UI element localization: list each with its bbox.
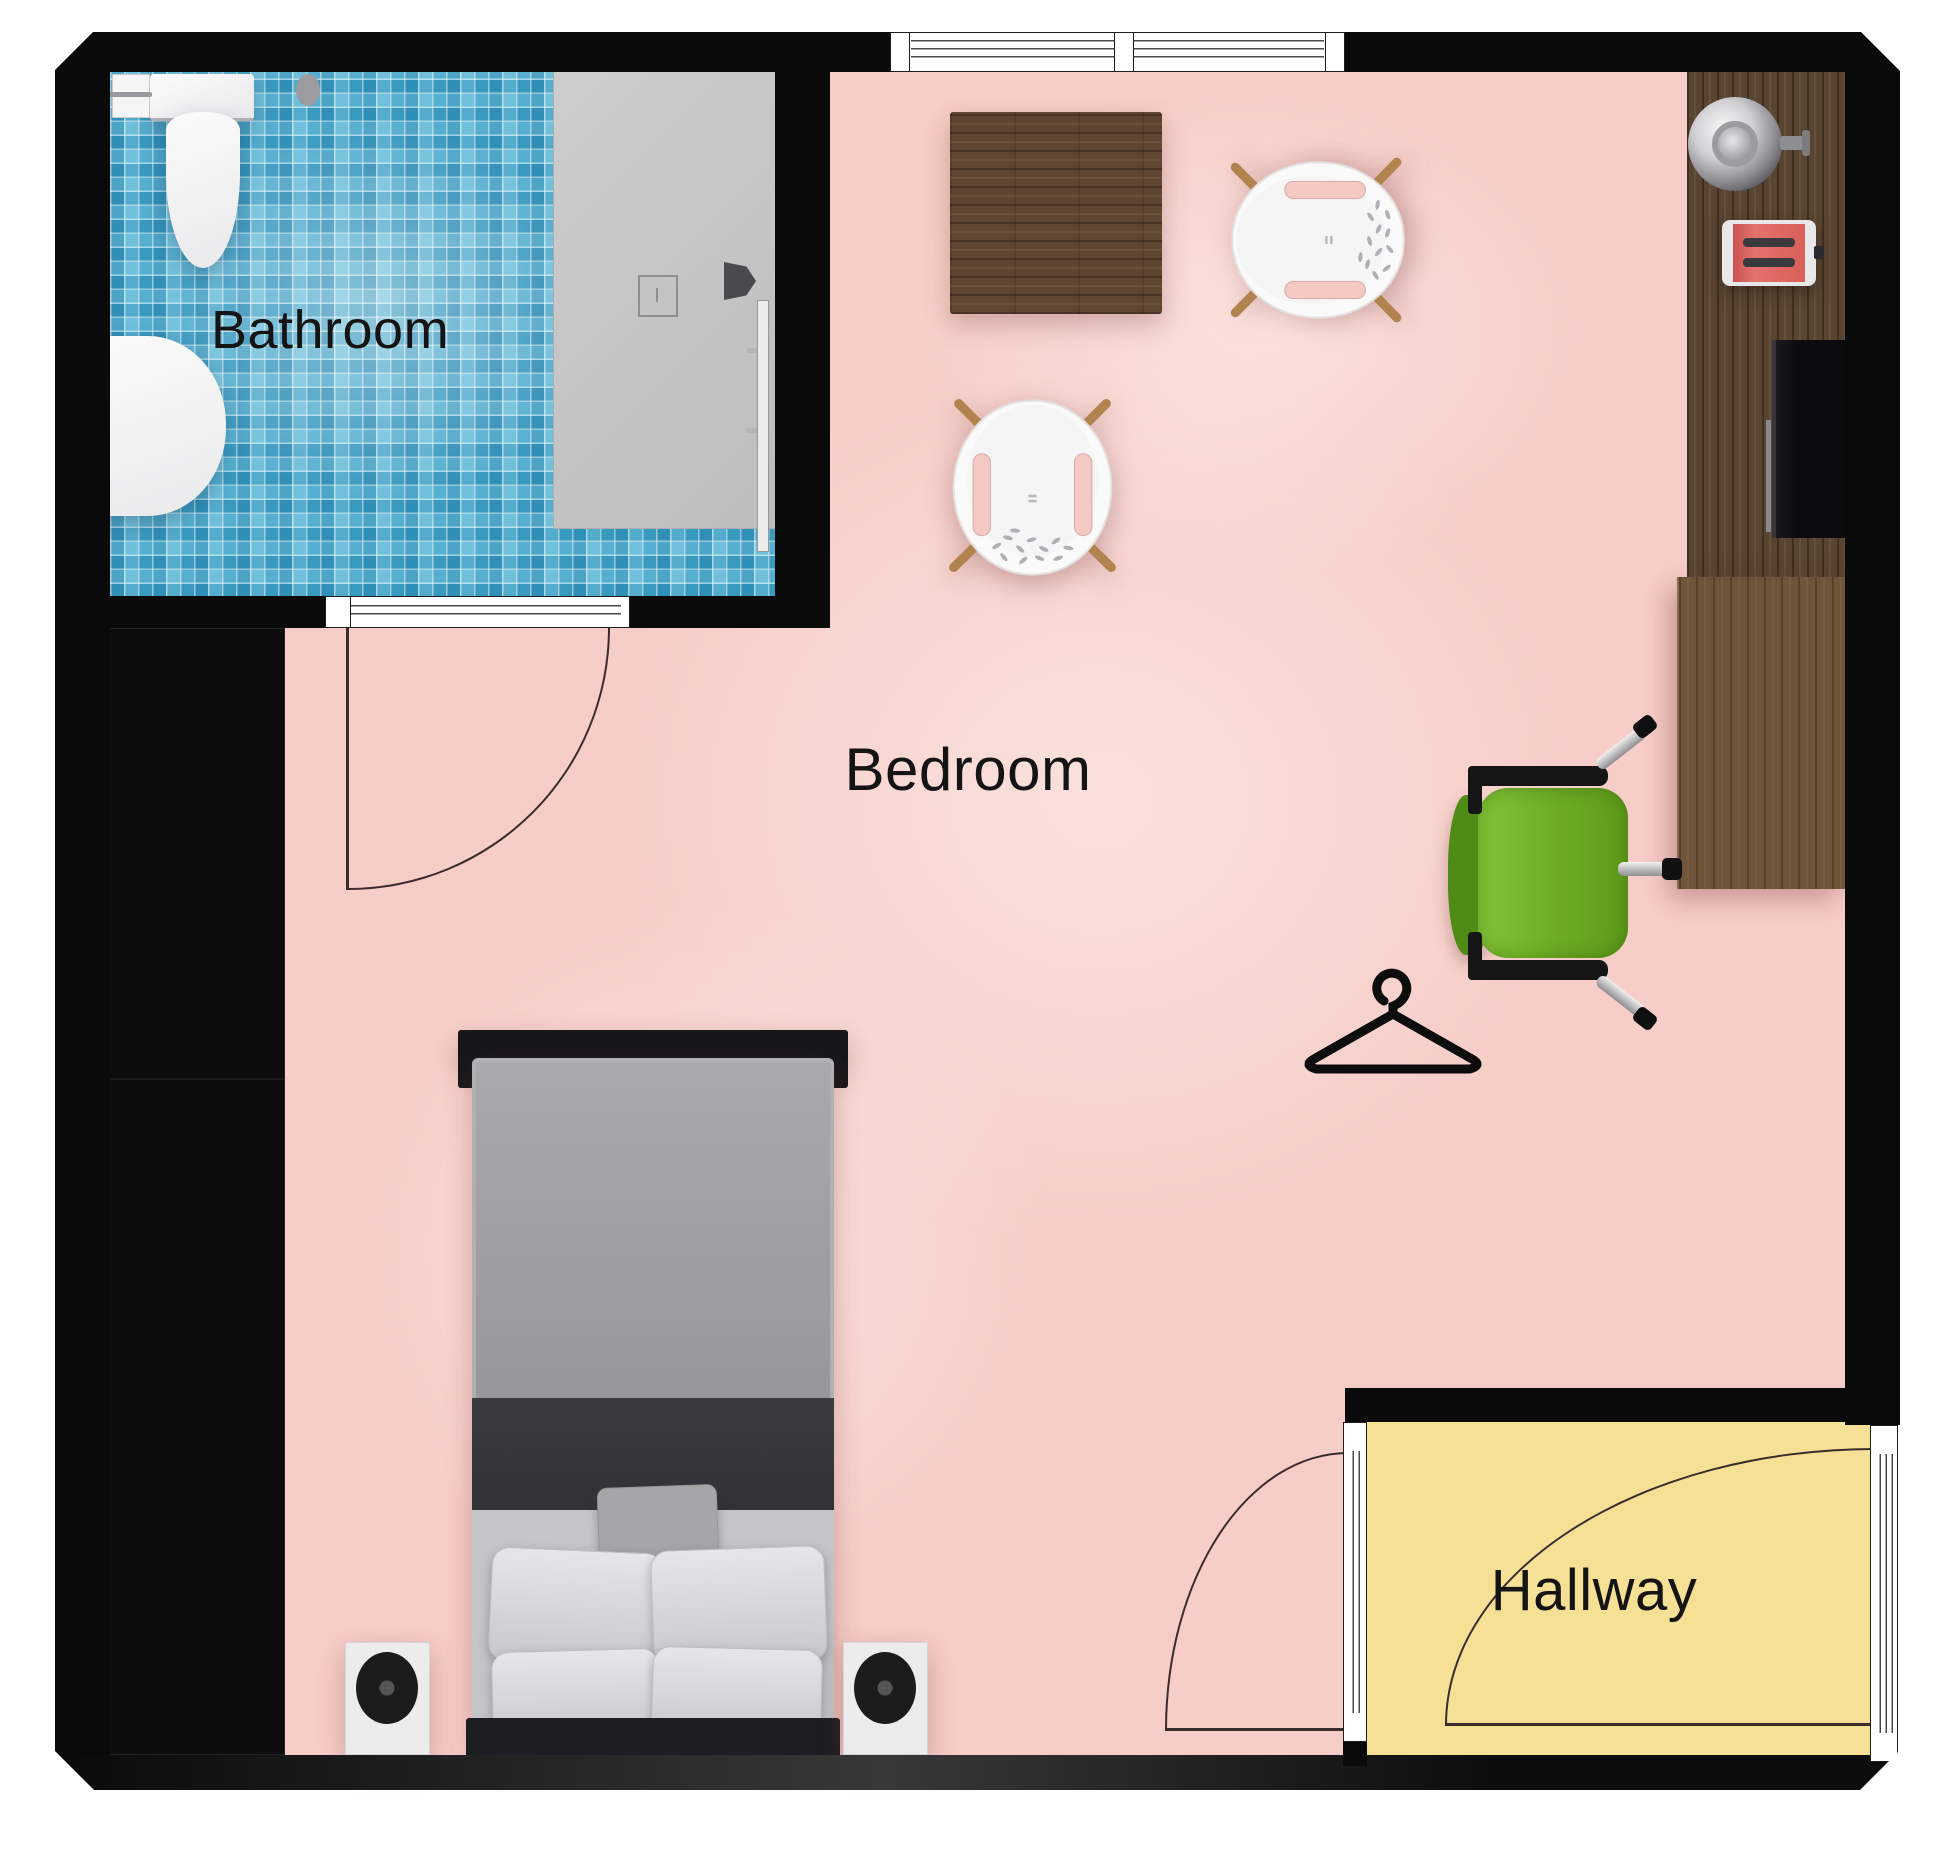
- wall-top-right: [1345, 32, 1900, 72]
- shower-rail-icon: [757, 300, 769, 552]
- bathroom-drain-icon: [296, 74, 320, 106]
- kettle-handle-tip-icon: [1802, 130, 1810, 156]
- window-frame-end: [1325, 32, 1345, 72]
- office-chair-armrest: [1468, 766, 1608, 786]
- toilet-paper-bar-icon: [104, 92, 152, 97]
- clothes-hanger-icon: [1300, 966, 1485, 1080]
- corner-bevel: [52, 1748, 96, 1792]
- wall-left: [55, 32, 110, 1790]
- toaster-slot: [1743, 258, 1795, 267]
- wall-bathroom-bottom-right: [630, 596, 830, 628]
- wall-hallway-top: [1345, 1388, 1900, 1422]
- floor-plan: Bathroom Bedroom Hallway: [0, 0, 1939, 1850]
- shower-knob-icon: [747, 428, 757, 433]
- bathroom-door-threshold: [325, 596, 630, 628]
- bathroom-label: Bathroom: [180, 300, 480, 360]
- wall-top-left: [55, 32, 890, 72]
- wall-right-upper: [1845, 32, 1900, 1425]
- bed-headboard: [466, 1718, 840, 1758]
- wall-bottom: [55, 1755, 1900, 1790]
- toaster-knob-icon: [1814, 246, 1824, 259]
- tv-icon: [1772, 340, 1845, 538]
- hallway-right-door-frame: [1870, 1425, 1898, 1762]
- hallway-label: Hallway: [1444, 1560, 1744, 1622]
- armchair-bottom: [925, 376, 1140, 591]
- dining-table: [950, 112, 1162, 314]
- window-mullion: [1114, 32, 1134, 72]
- threshold-lines: [334, 603, 621, 621]
- lamp-right-icon: [854, 1652, 916, 1724]
- door-frame-lines: [1348, 1451, 1362, 1713]
- threshold-frame-end: [325, 596, 351, 628]
- toaster-body: [1733, 224, 1805, 282]
- office-chair-armrest-stub: [1468, 766, 1482, 814]
- office-chair-cylinder-cap: [1662, 858, 1682, 880]
- bed-side-tab: [832, 1060, 848, 1088]
- hallway-left-door-frame: [1343, 1422, 1367, 1742]
- shower-knob-icon: [747, 348, 757, 353]
- wall-bathroom-right: [775, 32, 830, 628]
- shower-drain-icon: [638, 275, 678, 317]
- armchair-right: [1208, 134, 1420, 346]
- corner-bevel: [52, 29, 96, 73]
- shower-drain-slot: [656, 288, 658, 302]
- corner-bevel: [1858, 1748, 1902, 1792]
- office-chair-seat: [1478, 788, 1628, 958]
- armchair-icon: [1208, 134, 1420, 346]
- wall-bathroom-bottom-left: [55, 596, 325, 628]
- bathroom-door-leaf: [346, 628, 349, 890]
- toaster-slot: [1743, 238, 1795, 247]
- window-frame-end: [890, 32, 910, 72]
- bed-duvet: [476, 1062, 830, 1402]
- armchair-icon: [925, 376, 1140, 591]
- office-chair-armrest: [1468, 960, 1608, 980]
- lamp-left-icon: [356, 1652, 418, 1724]
- hallway-door-leaf: [1445, 1723, 1875, 1726]
- kettle-lid-icon: [1712, 121, 1758, 167]
- tv-stand-edge: [1766, 420, 1771, 532]
- corner-bevel: [1858, 29, 1902, 73]
- desk: [1677, 577, 1845, 889]
- door-frame-lines: [1875, 1454, 1893, 1733]
- bedroom-door-leaf: [1165, 1728, 1348, 1731]
- bedroom-label: Bedroom: [818, 738, 1118, 802]
